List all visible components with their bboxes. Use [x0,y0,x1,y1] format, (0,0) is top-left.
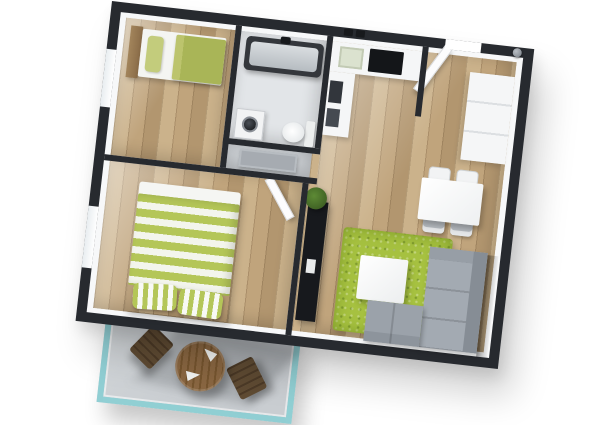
wall-switch [356,30,366,38]
plan-interior [87,12,524,358]
napkin [201,349,218,364]
sofa-chaise [363,300,423,347]
double-bed [125,181,241,322]
sofa-seams [419,259,473,352]
napkin [182,365,200,382]
bed-duvet [172,35,227,85]
floor-plan [76,1,535,369]
striped-duvet [128,193,240,296]
cooktop [368,49,404,76]
bathtub-faucet [280,36,291,44]
built-in-appliance [328,80,343,103]
toilet-bowl [281,121,305,143]
sofa-seam [389,303,396,344]
dining-table [417,177,483,226]
corner-sofa [363,240,488,353]
sofa-main-seat [419,247,488,354]
cabinet-handle [305,259,316,274]
wall-switch [344,28,354,36]
washing-machine [233,108,265,141]
apartment-render [65,1,534,425]
striped-pillow [132,282,178,311]
built-in-appliance [325,108,340,127]
wardrobe [460,72,515,165]
washing-machine-door [241,115,259,133]
striped-pillow [177,288,224,320]
floor-plan-stage [0,0,604,425]
bathtub-basin [249,41,319,73]
window-master-bedroom [82,206,99,269]
single-bed [125,25,228,88]
cutting-board [338,46,364,70]
window-small-bedroom [100,49,117,108]
door-knob [512,48,522,58]
